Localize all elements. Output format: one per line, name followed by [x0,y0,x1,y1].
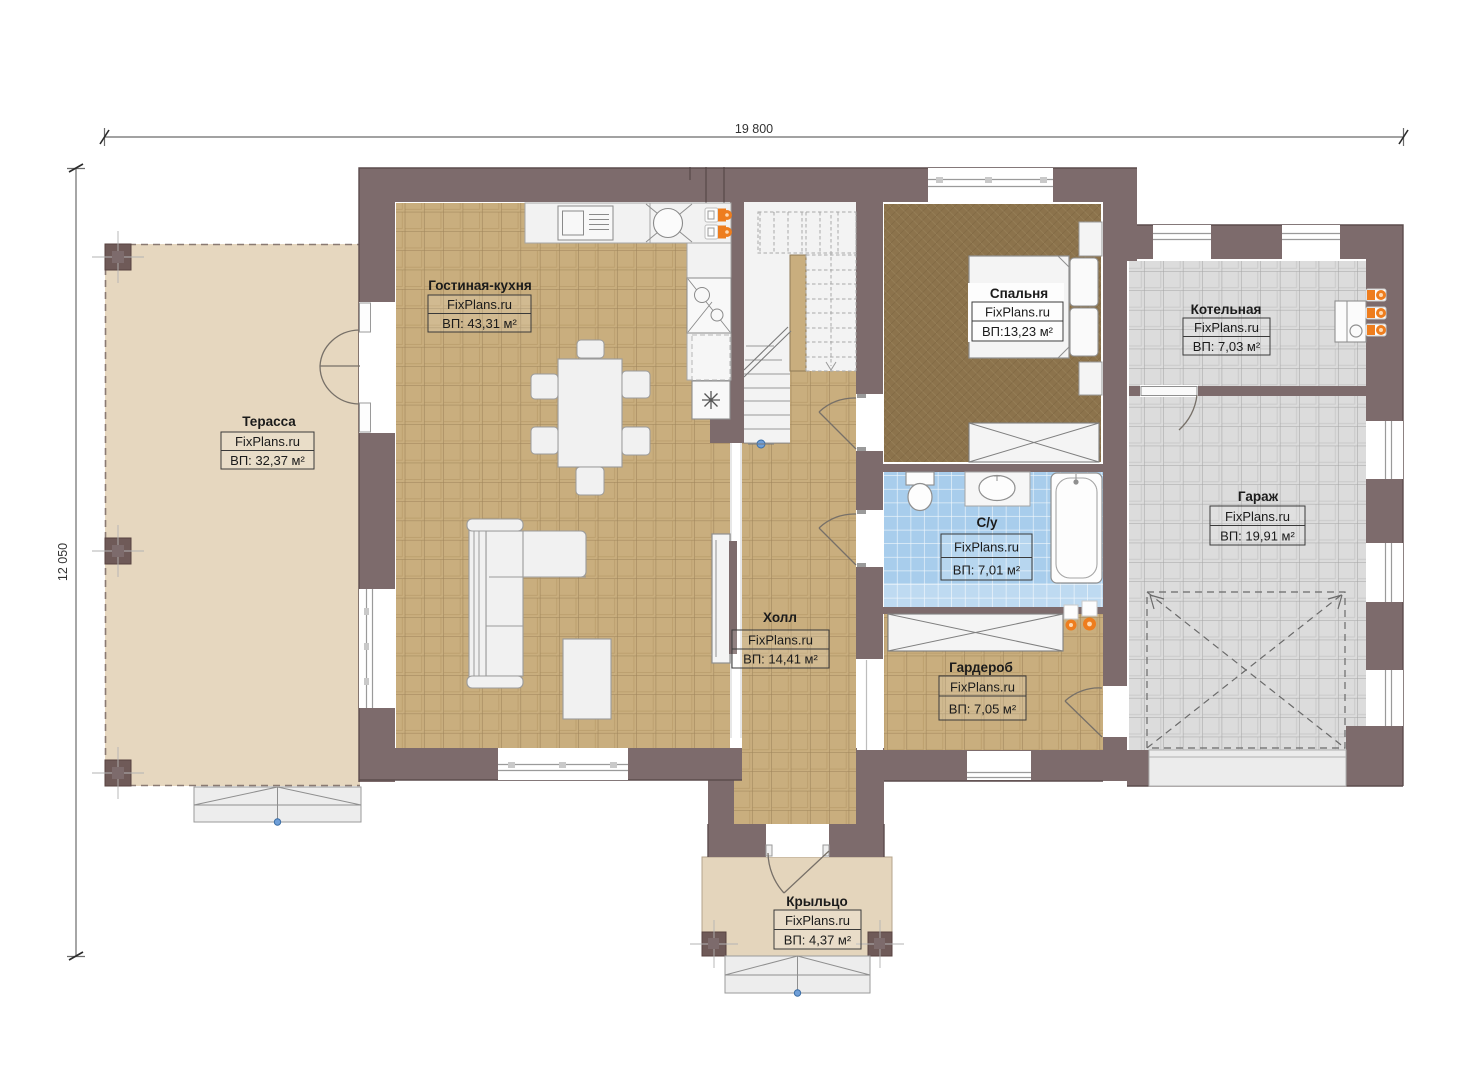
svg-text:Гардероб: Гардероб [949,660,1013,675]
svg-text:FixPlans.ru: FixPlans.ru [950,680,1015,695]
svg-text:Котельная: Котельная [1191,302,1262,317]
svg-text:19 800: 19 800 [735,122,773,136]
svg-text:FixPlans.ru: FixPlans.ru [447,297,512,312]
svg-text:FixPlans.ru: FixPlans.ru [985,305,1050,320]
svg-text:Гараж: Гараж [1238,489,1279,504]
svg-text:ВП: 19,91 м²: ВП: 19,91 м² [1220,529,1295,544]
svg-text:ВП: 7,01 м²: ВП: 7,01 м² [953,563,1021,578]
svg-text:ВП: 7,05 м²: ВП: 7,05 м² [949,702,1017,717]
svg-text:FixPlans.ru: FixPlans.ru [954,540,1019,555]
svg-text:Гостиная-кухня: Гостиная-кухня [428,278,531,293]
svg-text:12 050: 12 050 [56,543,70,581]
svg-text:Спальня: Спальня [990,286,1048,301]
svg-text:Крыльцо: Крыльцо [786,894,847,909]
svg-text:ВП:13,23 м²: ВП:13,23 м² [982,324,1054,339]
svg-text:Терасса: Терасса [242,414,296,429]
svg-text:ВП: 4,37 м²: ВП: 4,37 м² [784,933,852,948]
svg-text:Холл: Холл [763,610,797,625]
svg-text:ВП: 32,37 м²: ВП: 32,37 м² [230,453,305,468]
svg-text:ВП: 7,03 м²: ВП: 7,03 м² [1193,339,1261,354]
svg-text:FixPlans.ru: FixPlans.ru [1225,509,1290,524]
svg-text:FixPlans.ru: FixPlans.ru [235,434,300,449]
svg-text:ВП: 43,31 м²: ВП: 43,31 м² [442,316,517,331]
svg-text:ВП: 14,41 м²: ВП: 14,41 м² [743,652,818,667]
svg-text:FixPlans.ru: FixPlans.ru [1194,320,1259,335]
svg-text:FixPlans.ru: FixPlans.ru [748,633,813,648]
svg-text:FixPlans.ru: FixPlans.ru [785,913,850,928]
svg-text:С/у: С/у [976,515,998,530]
